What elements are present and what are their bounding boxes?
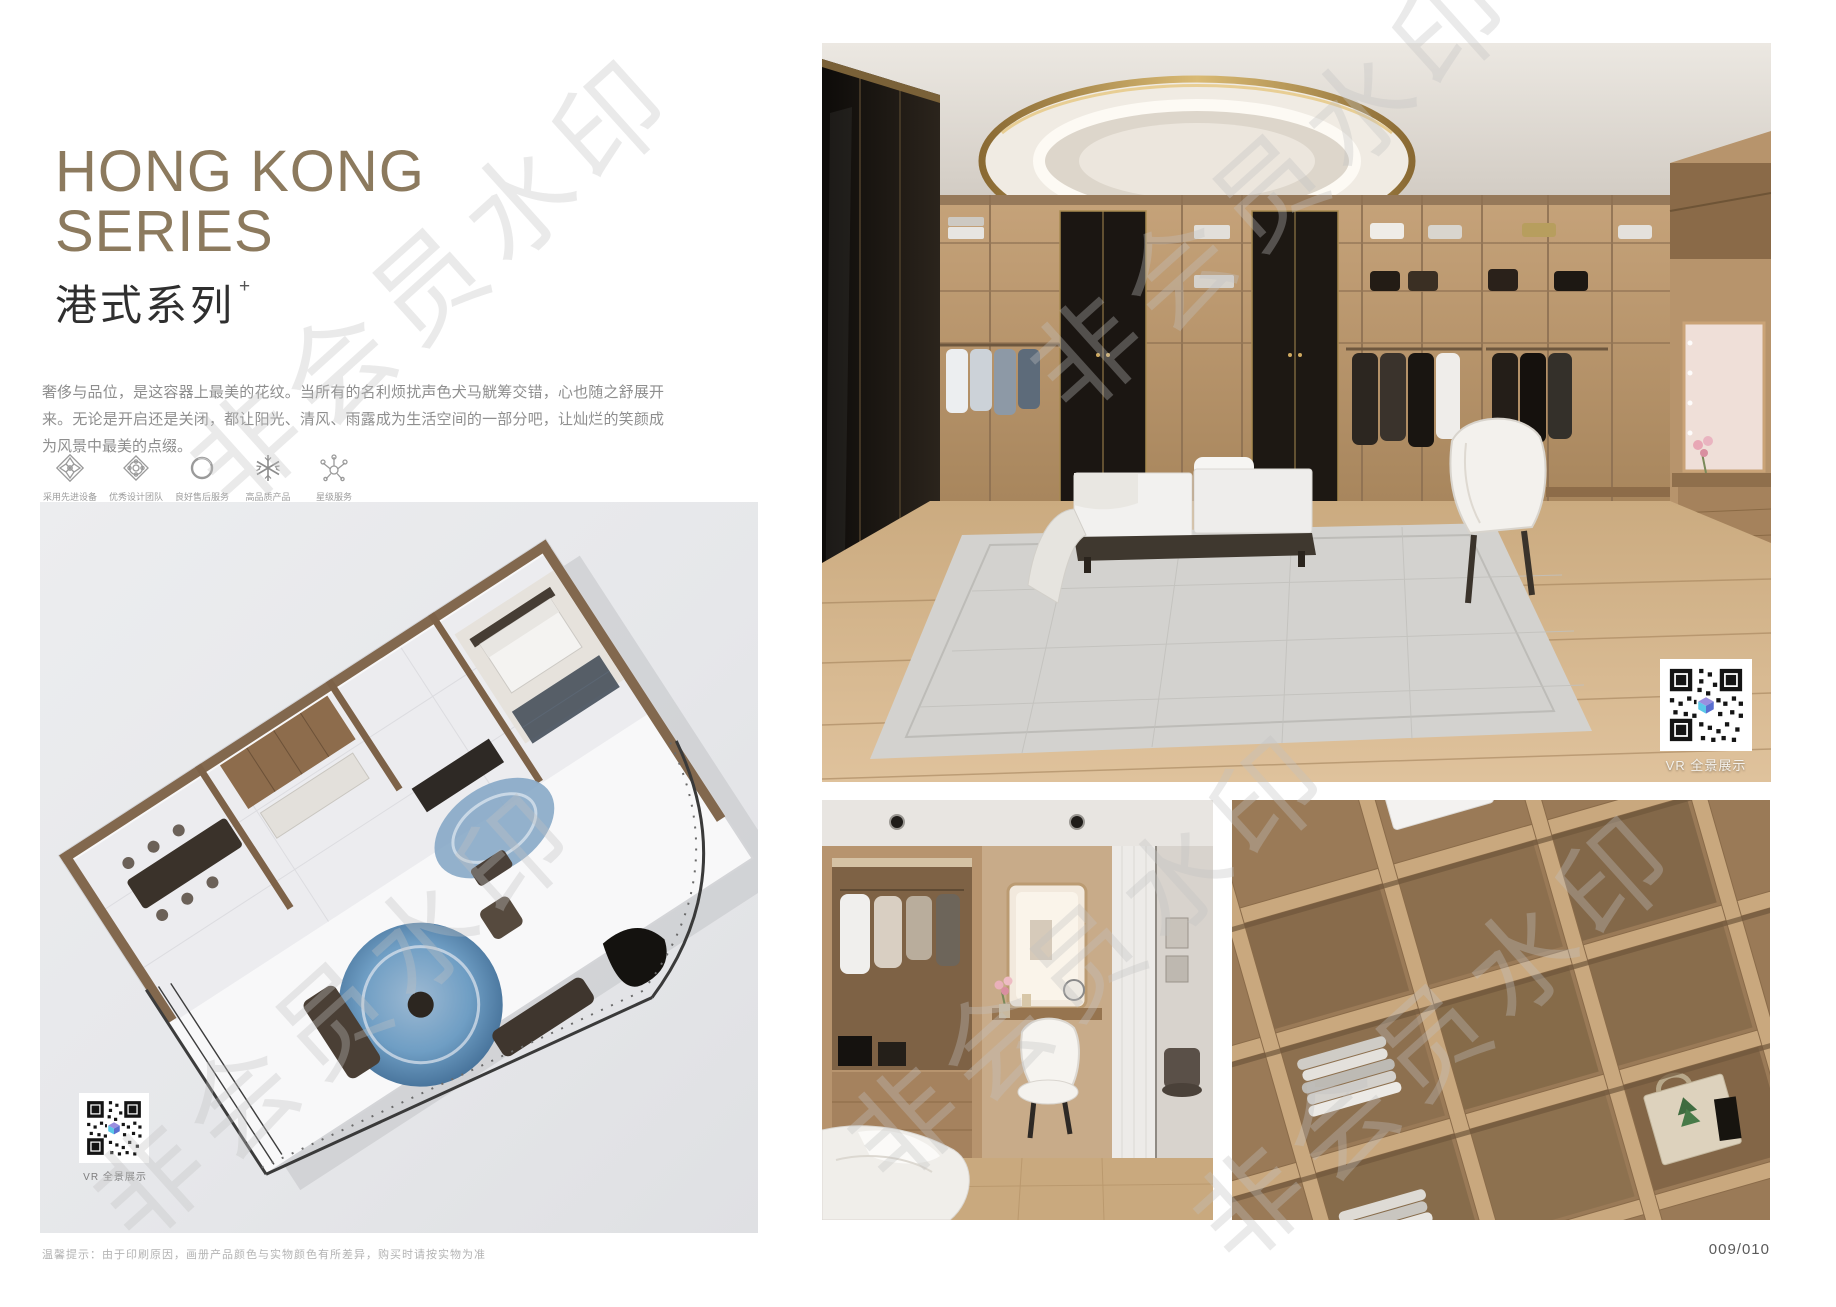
feature-equipment: 采用先进设备 — [42, 452, 98, 503]
snowflake-icon — [252, 452, 284, 484]
floral-diamond-icon — [54, 452, 86, 484]
qr-code-main-photo — [1663, 662, 1749, 748]
feature-after-sales: 良好售后服务 — [174, 452, 230, 503]
main-closet-photo: VR 全景展示 — [822, 43, 1771, 782]
dressing-scene — [822, 800, 1213, 1220]
title-line-2: SERIES — [55, 199, 274, 264]
dressing-table-photo — [822, 800, 1213, 1220]
rosette-icon — [120, 452, 152, 484]
page-number: 009/010 — [1709, 1241, 1770, 1258]
title-line-1: HONG KONG — [55, 139, 425, 204]
ring-icon — [186, 452, 218, 484]
feature-quality: 高品质产品 — [240, 452, 296, 503]
star-service-icon — [318, 452, 350, 484]
shelf-scene — [1232, 800, 1770, 1220]
series-title-en: HONG KONG SERIES — [55, 142, 425, 262]
feature-star-service: 星级服务 — [306, 452, 362, 503]
floorplan-image — [40, 502, 758, 1233]
series-title-cn: 港式系列+ — [55, 272, 253, 333]
feature-icons-row: 采用先进设备 优秀设计团队 良好售后服务 高品质产品 — [42, 452, 362, 503]
floorplan-illustration — [40, 502, 758, 1233]
vr-label-floorplan: VR 全景展示 — [70, 1168, 160, 1183]
closet-scene — [822, 43, 1771, 782]
feature-design-team: 优秀设计团队 — [108, 452, 164, 503]
series-description: 奢侈与品位，是这容器上最美的花纹。当所有的名利烦扰声色犬马觥筹交错，心也随之舒展… — [42, 379, 664, 460]
print-disclaimer: 温馨提示：由于印刷原因，画册产品颜色与实物颜色有所差异，购买时请按实物为准 — [42, 1246, 486, 1262]
shelf-cubby-photo — [1232, 800, 1770, 1220]
qr-code-floorplan — [82, 1096, 146, 1160]
catalog-page: 非会员水印 非会员水印 非会员水印 非会员水印 非会员水印 HONG KONG … — [0, 0, 1836, 1307]
vr-label-main-photo: VR 全景展示 — [1648, 755, 1764, 774]
subtitle-text: 港式系列 — [55, 282, 235, 329]
subtitle-plus-mark: + — [239, 276, 253, 297]
